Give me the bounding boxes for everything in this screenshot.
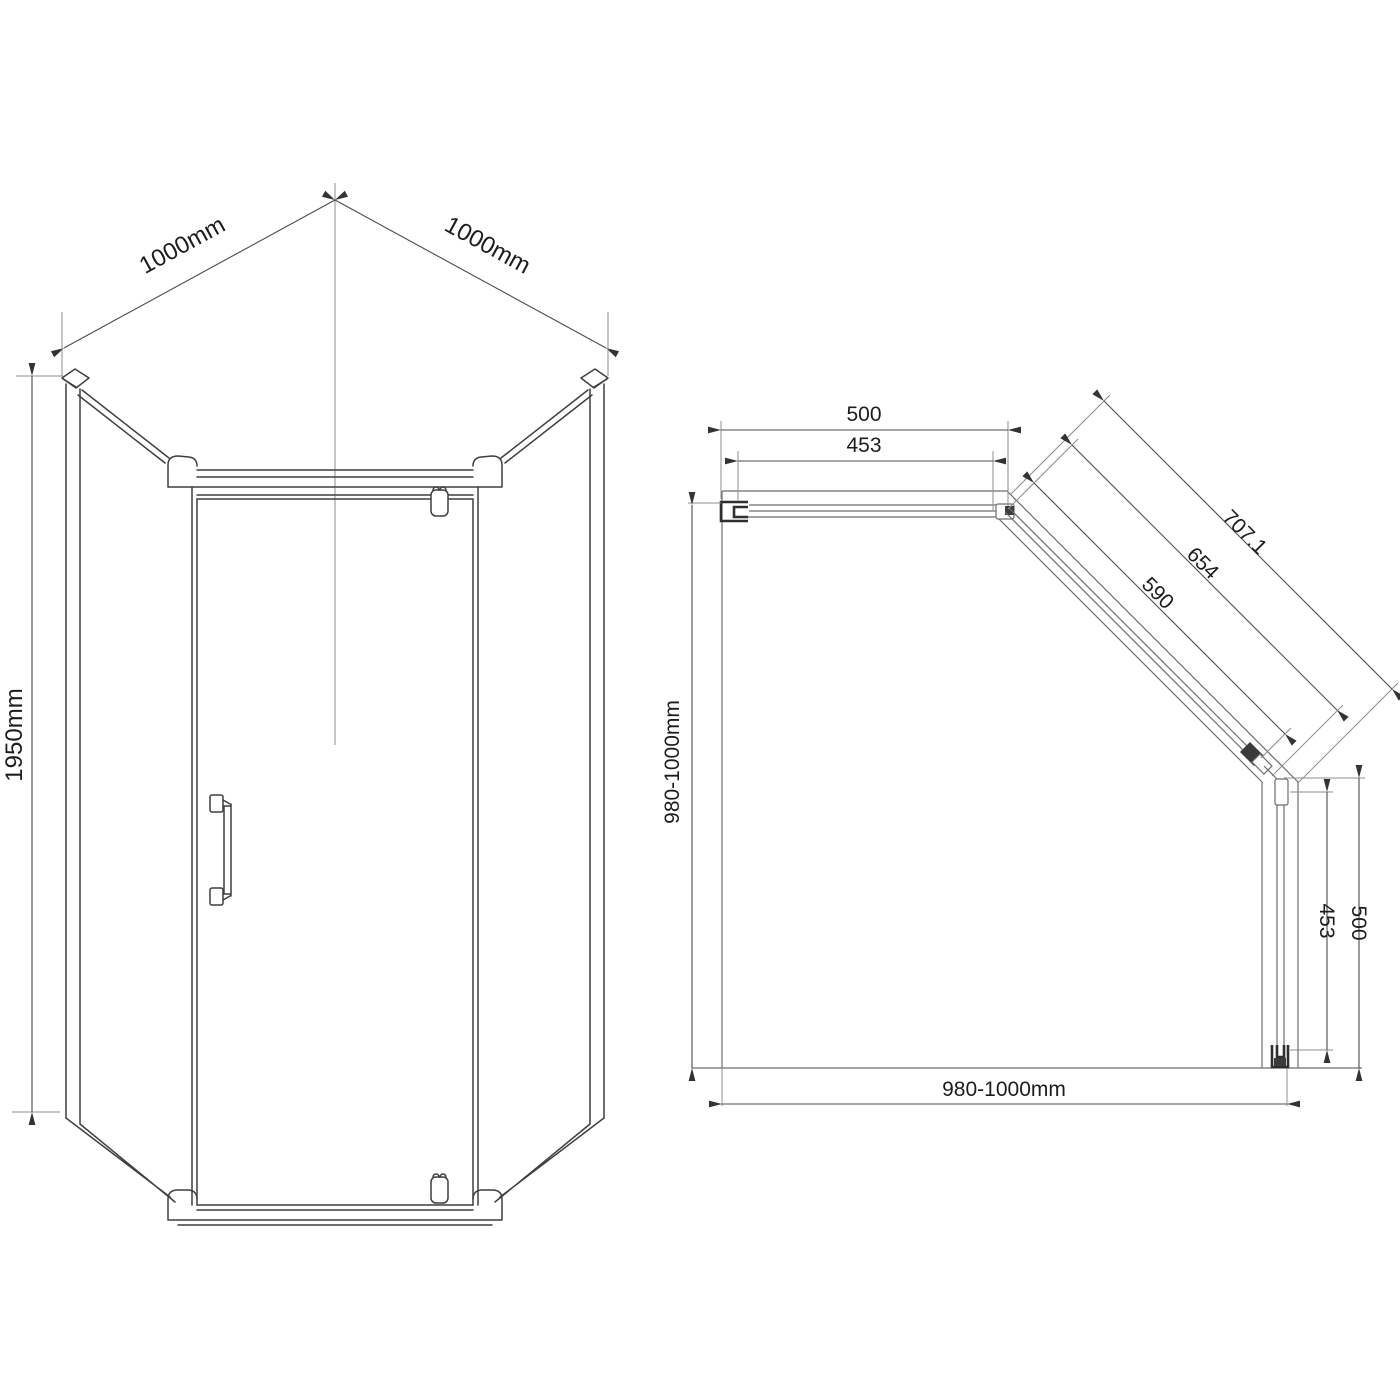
plan-right-panel-glass [1277,805,1284,1045]
plan-door-hinge [1240,742,1288,805]
plan-top-outer-label: 500 [846,403,881,426]
plan-right-outer-label: 500 [1347,905,1370,940]
drawing-canvas: 1000mm 1000mm 1950mm [0,0,1400,1400]
bottom-angled-panels [66,1118,604,1202]
plan-diag-outer-label: 707.1 [1218,506,1271,559]
plan-diagonal-extension-lines [1008,395,1398,783]
door-handle [210,795,231,905]
plan-top-inner-label: 453 [846,434,881,457]
plan-bottom-label: 980-1000mm [942,1078,1066,1101]
plan-view: 500 453 707.1 654 590 980-1000mm 980-100… [661,395,1398,1106]
plan-wall-bracket-bottom-right [1272,1045,1288,1067]
front-elevation-view: 1000mm 1000mm 1950mm [1,183,608,1225]
front-height-label: 1950mm [1,688,28,781]
front-width-left-label: 1000mm [135,211,230,279]
door-hinge-top [431,487,448,516]
plan-wall-bracket-top-left [721,502,748,521]
plan-diag-inner-label: 590 [1137,573,1178,614]
shower-enclosure-technical-drawing: 1000mm 1000mm 1950mm [0,0,1400,1400]
plan-top-panel-glass [749,505,1004,511]
plan-inner-boundary [747,517,1262,1068]
front-width-right-label: 1000mm [440,211,535,279]
plan-side-left-label: 980-1000mm [661,700,684,824]
plan-diag-mid-label: 654 [1182,543,1223,584]
door-hinge-bottom [431,1174,448,1203]
plan-door-glass [1005,508,1254,757]
bottom-curb [168,1190,502,1225]
plan-right-inner-label: 453 [1315,903,1338,938]
